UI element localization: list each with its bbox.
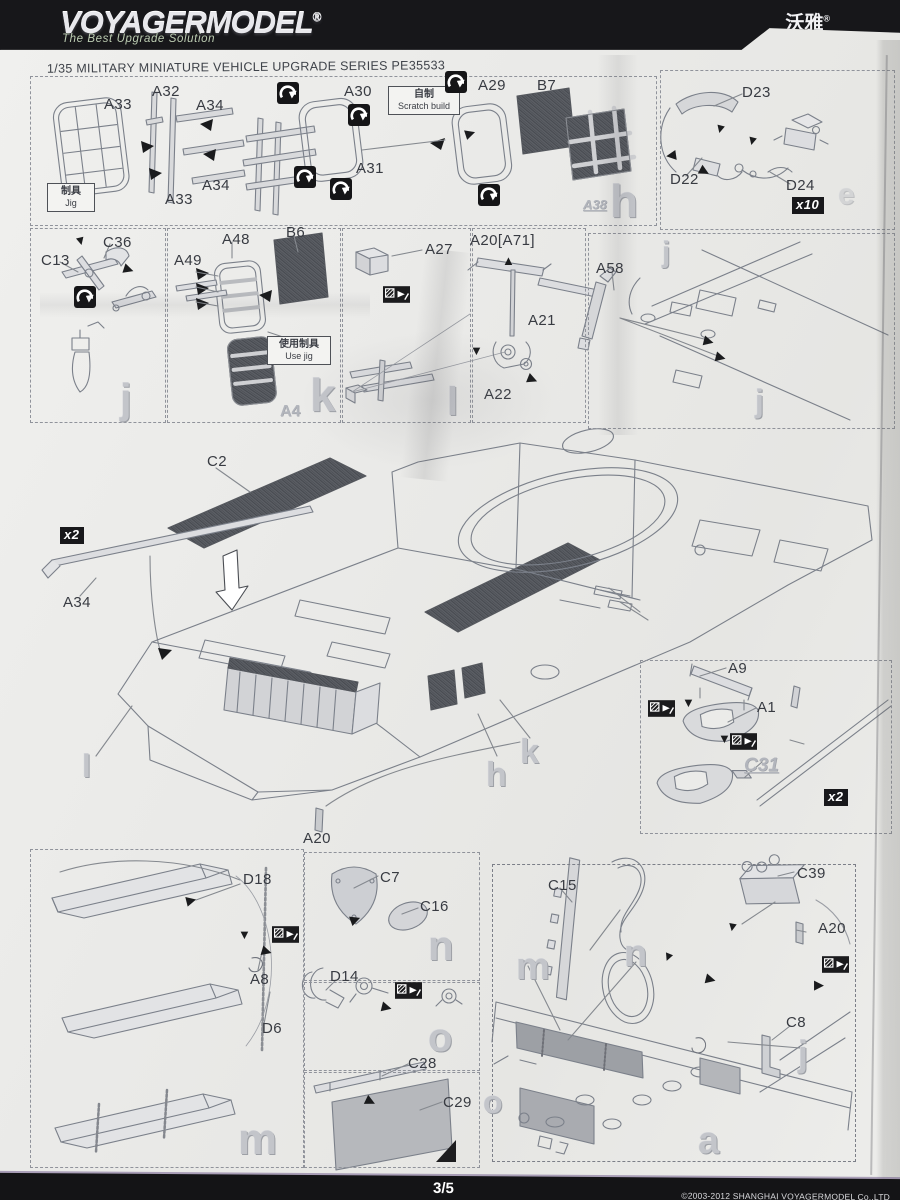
part-label: C16 (420, 898, 449, 915)
bend-icon (277, 82, 299, 104)
solder-icon (395, 982, 422, 999)
part-label: A22 (484, 386, 512, 403)
fret-letter: j (755, 385, 764, 417)
fret-letter: l (447, 382, 458, 422)
part-label-gray: C31 (744, 755, 779, 777)
bend-icon (294, 166, 316, 188)
part-label: A58 (596, 260, 624, 277)
fret-letter: a (698, 1122, 719, 1160)
arrow-icon: ▼ (725, 919, 740, 934)
part-label-gray: A4 (280, 403, 300, 421)
part-label: B6 (286, 224, 305, 241)
fret-letter: e (838, 180, 855, 210)
part-label: C7 (380, 869, 400, 886)
use-jig-note-en: Use jig (270, 351, 328, 362)
solder-icon (730, 733, 757, 750)
part-label: C8 (786, 1014, 806, 1031)
solder-icon (648, 700, 675, 717)
registered-mark: ® (313, 11, 321, 25)
step-box-side (492, 864, 856, 1162)
fret-letter: m (516, 948, 550, 986)
part-label: D18 (243, 871, 272, 888)
fret-letter: k (520, 735, 539, 769)
step-box-shovel (640, 660, 892, 834)
bend-icon (74, 286, 96, 308)
fret-letter: j (120, 378, 132, 420)
jig-note-zh: 制具 (50, 186, 92, 198)
jig-note: 制具 Jig (47, 183, 95, 212)
arrow-icon: ▼ (682, 696, 695, 709)
step-box-c28 (304, 1072, 480, 1168)
part-label: A8 (250, 971, 269, 988)
part-label: C29 (443, 1094, 472, 1111)
part-label: C2 (207, 453, 227, 470)
arrow-icon: ▼ (73, 233, 89, 249)
part-label: A27 (425, 241, 453, 258)
fret-letter: j (662, 238, 670, 268)
solder-icon (272, 926, 299, 943)
fret-letter: o (428, 1018, 452, 1058)
quantity-badge-x10: x10 (792, 197, 824, 214)
part-label: A49 (174, 252, 202, 269)
part-label: A31 (356, 160, 384, 177)
brand-tagline: The Best Upgrade Solution (62, 33, 215, 45)
use-jig-note-zh: 使用制具 (270, 339, 328, 351)
part-label: A48 (222, 231, 250, 248)
part-label: B7 (537, 77, 556, 94)
jig-note-en: Jig (50, 198, 92, 209)
part-label: A20 (303, 830, 331, 847)
fret-letter: h (486, 758, 507, 792)
instruction-sheet-page: h e j k l j j l h k m n o m n o j a A33 … (0, 0, 900, 1200)
part-label: A34 (63, 594, 91, 611)
part-label: A29 (478, 77, 506, 94)
c2-mesh-drawing (168, 458, 600, 632)
part-label: C13 (41, 252, 70, 269)
bend-icon (445, 71, 467, 93)
part-label: C28 (408, 1055, 437, 1072)
step-box-a58 (588, 233, 895, 429)
fret-letter: m (238, 1118, 277, 1162)
part-label: A30 (344, 83, 372, 100)
part-label: C15 (548, 877, 577, 894)
fret-letter: n (428, 925, 454, 967)
part-label: A32 (152, 83, 180, 100)
solder-icon (822, 956, 849, 973)
fret-letter: h (610, 178, 638, 224)
part-label: D14 (330, 968, 359, 985)
solder-icon (383, 286, 410, 303)
bend-icon (478, 184, 500, 206)
part-label: A20 (818, 920, 846, 937)
arrow-icon: ▼ (238, 928, 251, 941)
fret-letter: j (798, 1036, 808, 1072)
arrow-icon: ▲ (502, 254, 515, 267)
quantity-badge-x2: x2 (60, 527, 84, 544)
fret-letter: l (82, 750, 91, 782)
fret-letter: o (483, 1086, 503, 1118)
copyright-text: ©2003-2012 SHANGHAI VOYAGERMODEL Co.,LTD (681, 1191, 890, 1200)
part-label: A34 (196, 97, 224, 114)
part-label: A33 (165, 191, 193, 208)
arrow-icon: ▼ (718, 732, 731, 745)
fret-letter: k (310, 372, 336, 418)
part-label: A34 (202, 177, 230, 194)
arrow-icon: ▶ (814, 978, 824, 991)
part-label: A21 (528, 312, 556, 329)
fret-letter: n (624, 935, 647, 973)
part-label: D22 (670, 171, 699, 188)
part-label: C39 (797, 865, 826, 882)
bend-icon (348, 104, 370, 126)
part-label: C36 (103, 234, 132, 251)
part-label: D24 (786, 177, 815, 194)
part-label: A33 (104, 96, 132, 113)
step-box-o (304, 982, 480, 1071)
arrow-icon: ▼ (470, 344, 483, 357)
part-label: A9 (728, 660, 747, 677)
use-jig-note: 使用制具 Use jig (267, 336, 331, 365)
part-label: D23 (742, 84, 771, 101)
bend-icon (330, 178, 352, 200)
part-label: A20[A71] (470, 232, 535, 249)
arrow-icon: ◀ (665, 147, 677, 161)
step-box-2 (660, 70, 895, 230)
scratch-note-en: Scratch build (391, 101, 457, 112)
part-label: A1 (757, 699, 776, 716)
quantity-badge-x2: x2 (824, 789, 848, 806)
part-label: D6 (262, 1020, 282, 1037)
page-number: 3/5 (433, 1180, 454, 1197)
part-label-gray: A38 (583, 197, 607, 212)
registered-mark: ® (823, 14, 830, 24)
